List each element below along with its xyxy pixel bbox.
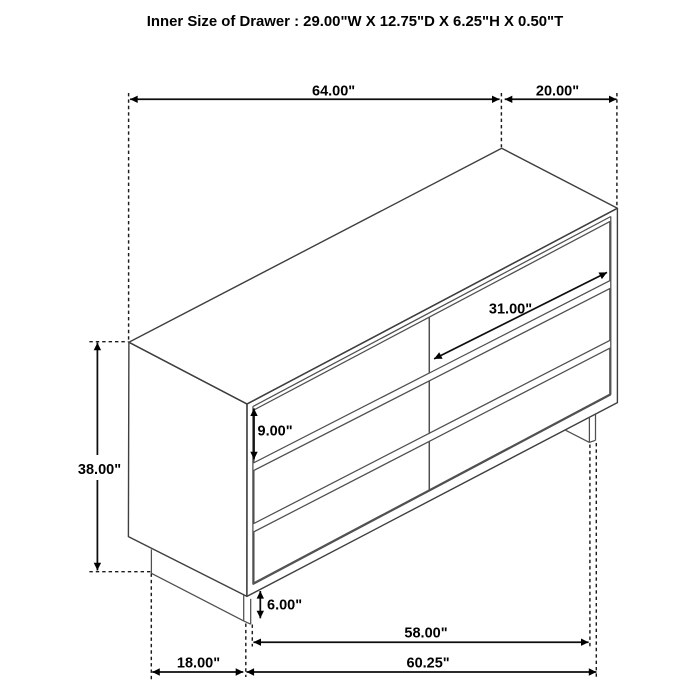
svg-text:6.00": 6.00" [267, 598, 302, 614]
svg-text:18.00": 18.00" [177, 655, 220, 671]
svg-text:58.00": 58.00" [404, 625, 447, 641]
svg-text:20.00": 20.00" [536, 83, 579, 99]
svg-text:60.25": 60.25" [407, 655, 450, 671]
svg-text:31.00": 31.00" [489, 301, 532, 317]
svg-text:38.00": 38.00" [78, 462, 121, 478]
svg-text:64.00": 64.00" [312, 83, 355, 99]
svg-text:9.00": 9.00" [258, 424, 293, 440]
svg-text:Inner Size of Drawer : 29.00"W: Inner Size of Drawer : 29.00"W X 12.75"D… [147, 14, 563, 30]
